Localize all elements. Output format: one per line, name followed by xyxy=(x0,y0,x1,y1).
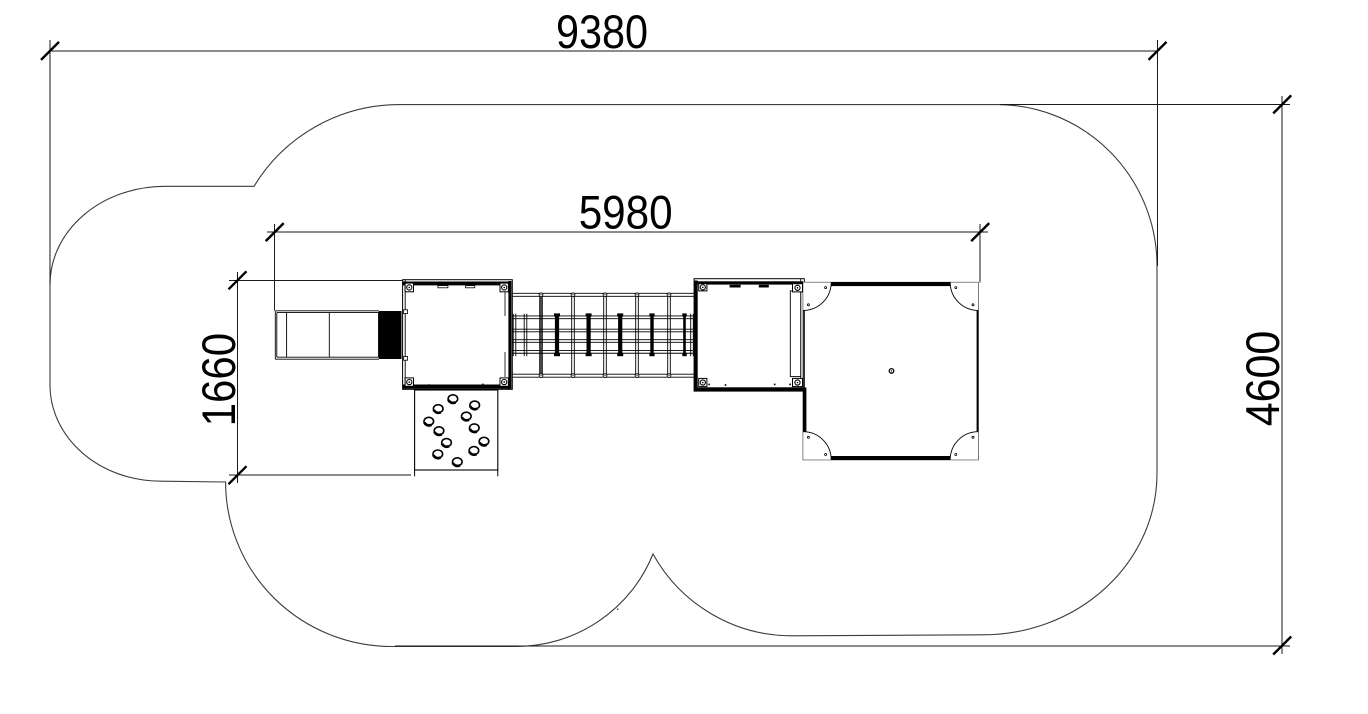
svg-text:5980: 5980 xyxy=(579,186,673,239)
svg-text:1660: 1660 xyxy=(193,333,246,427)
svg-text:4600: 4600 xyxy=(1237,331,1290,427)
svg-text:9380: 9380 xyxy=(556,6,648,59)
